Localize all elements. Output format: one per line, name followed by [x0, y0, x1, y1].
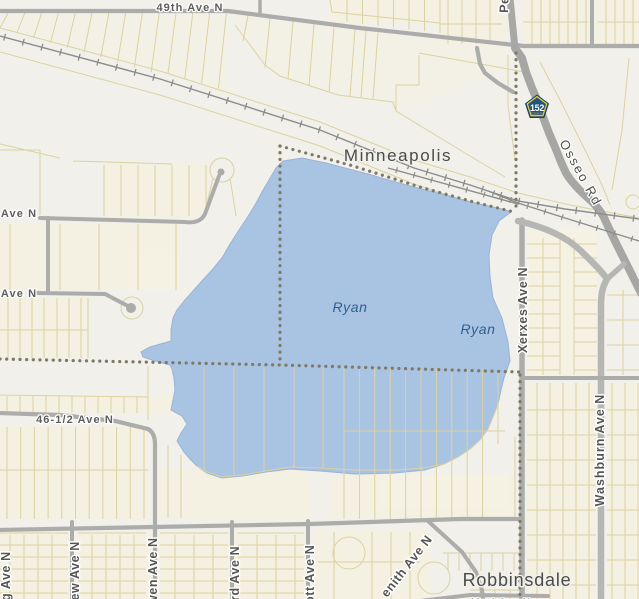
svg-text:Ryan: Ryan: [460, 321, 495, 337]
svg-text:Minneapolis: Minneapolis: [344, 146, 452, 165]
svg-text:Washburn Ave N: Washburn Ave N: [593, 394, 607, 507]
svg-text:COUNTY: COUNTY: [531, 112, 543, 116]
svg-text:g Ave N: g Ave N: [0, 551, 13, 599]
svg-text:Ave N: Ave N: [1, 208, 37, 220]
svg-text:46-1/2 Ave N: 46-1/2 Ave N: [36, 414, 114, 426]
svg-text:Robbinsdale: Robbinsdale: [463, 570, 572, 590]
svg-text:Ryan: Ryan: [332, 299, 367, 315]
svg-text:Ave N: Ave N: [1, 288, 37, 300]
svg-text:49th Ave N: 49th Ave N: [156, 2, 223, 14]
svg-text:ott Ave N: ott Ave N: [303, 545, 317, 599]
svg-text:wen Ave N: wen Ave N: [146, 537, 160, 599]
svg-text:rew Ave N: rew Ave N: [68, 541, 82, 599]
svg-text:rd Ave N: rd Ave N: [228, 546, 242, 599]
svg-text:Xerxes Ave N: Xerxes Ave N: [516, 267, 530, 353]
